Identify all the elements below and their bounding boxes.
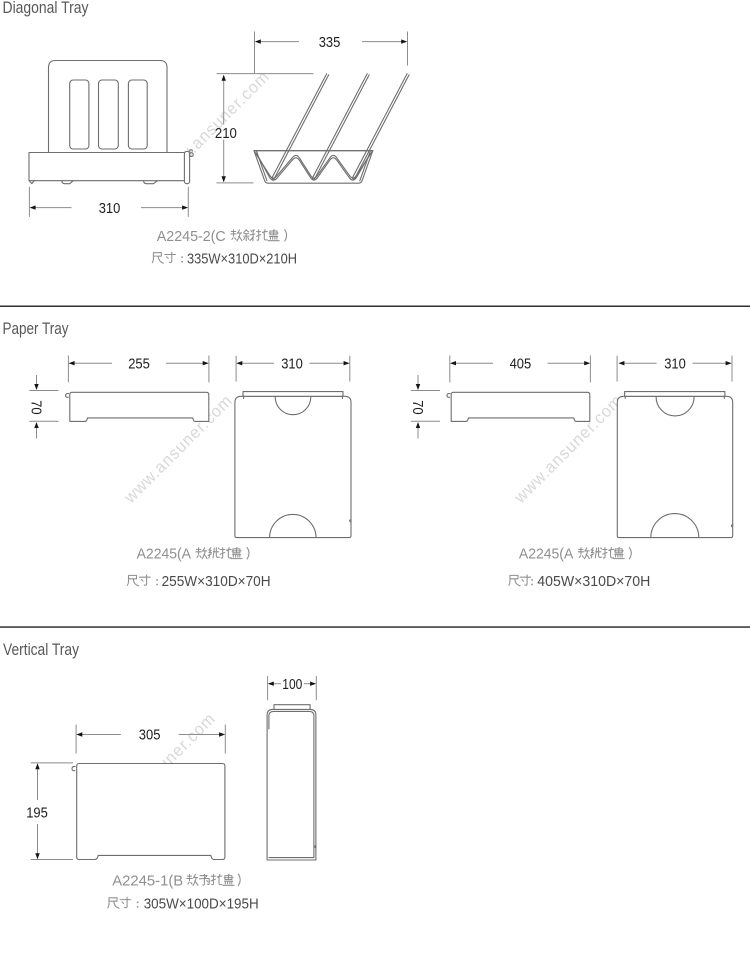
svg-text:195: 195 [26,805,48,822]
svg-text:Paper Tray: Paper Tray [3,320,70,338]
svg-text:100: 100 [282,676,302,693]
svg-text:70: 70 [28,400,45,414]
svg-text:255W×310D×70H: 255W×310D×70H [162,573,271,590]
svg-text:305W×100D×195H: 305W×100D×195H [144,895,259,912]
svg-text:255: 255 [128,355,150,372]
svg-text:405: 405 [510,355,532,372]
svg-text:310: 310 [99,200,121,217]
svg-text:335: 335 [319,34,341,51]
svg-text:Diagonal Tray: Diagonal Tray [3,0,90,17]
svg-text:A2245(A: A2245(A [519,546,573,563]
svg-text:310: 310 [281,355,303,372]
svg-text:305: 305 [139,727,161,744]
svg-text:A2245(A: A2245(A [137,546,191,563]
svg-text:Vertical Tray: Vertical Tray [3,641,80,659]
svg-text:335W×310D×210H: 335W×310D×210H [187,250,297,267]
svg-text:70: 70 [409,400,426,414]
svg-text:310: 310 [664,355,686,372]
svg-text:A2245-2(C: A2245-2(C [157,228,226,245]
svg-text:210: 210 [215,125,237,142]
svg-text:405W×310D×70H: 405W×310D×70H [537,573,650,590]
svg-text:A2245-1(B: A2245-1(B [112,872,183,889]
